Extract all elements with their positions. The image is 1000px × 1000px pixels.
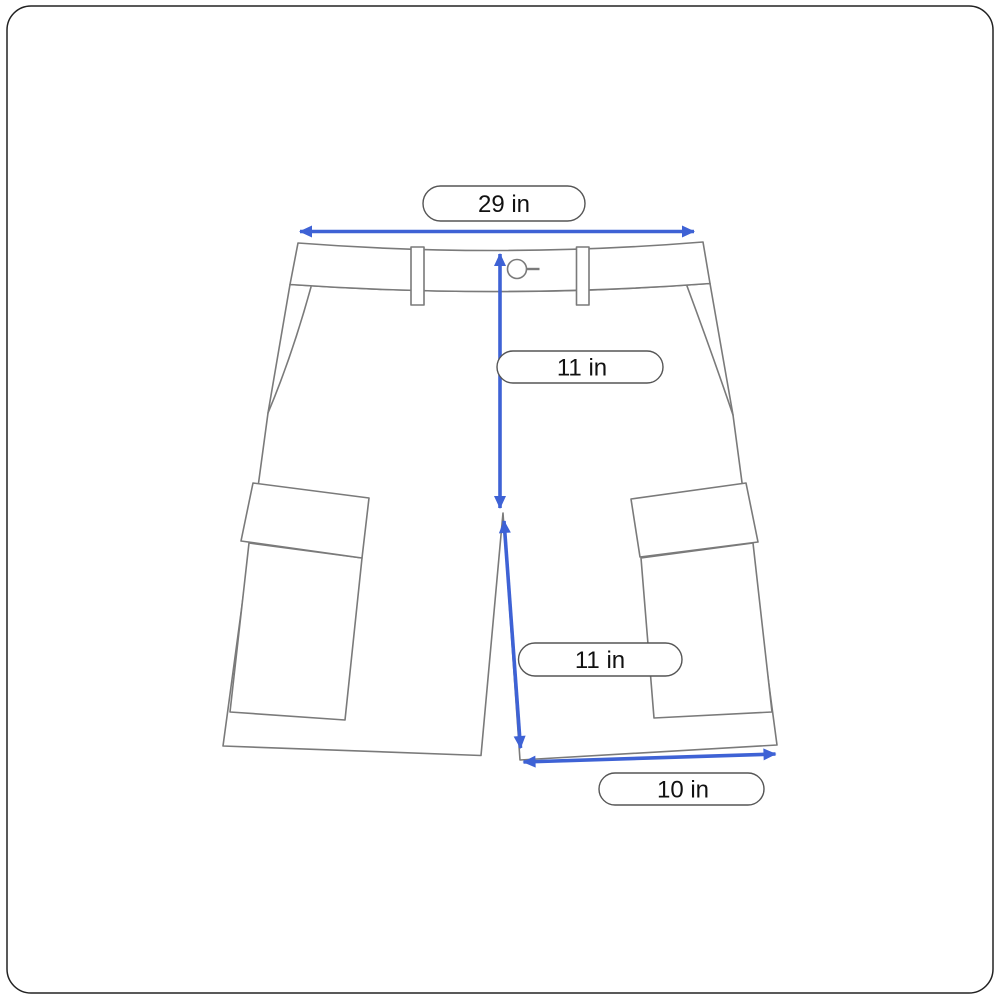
- cargo-pocket-right: [641, 543, 772, 718]
- belt-loop-right: [577, 247, 590, 305]
- inseam-measurement-label: 11 in: [575, 647, 625, 674]
- front-rise-measurement-label: 11 in: [557, 354, 607, 381]
- cargo-pocket-left: [230, 543, 362, 720]
- waist-measurement-pill: 29 in: [423, 186, 585, 221]
- waist-measurement-label: 29 in: [478, 191, 530, 218]
- measurement-diagram-page: 29 in 11 in 11 in 10 in: [0, 0, 1000, 1000]
- waist-button: [508, 260, 527, 279]
- belt-loop-left: [411, 247, 424, 305]
- inseam-measurement-pill: 11 in: [519, 643, 683, 676]
- shorts-measurement-diagram: 29 in 11 in 11 in 10 in: [0, 0, 1000, 1000]
- leg-opening-measurement-label: 10 in: [657, 776, 709, 803]
- leg-opening-measurement-pill: 10 in: [599, 773, 764, 805]
- front-rise-measurement-pill: 11 in: [497, 351, 663, 383]
